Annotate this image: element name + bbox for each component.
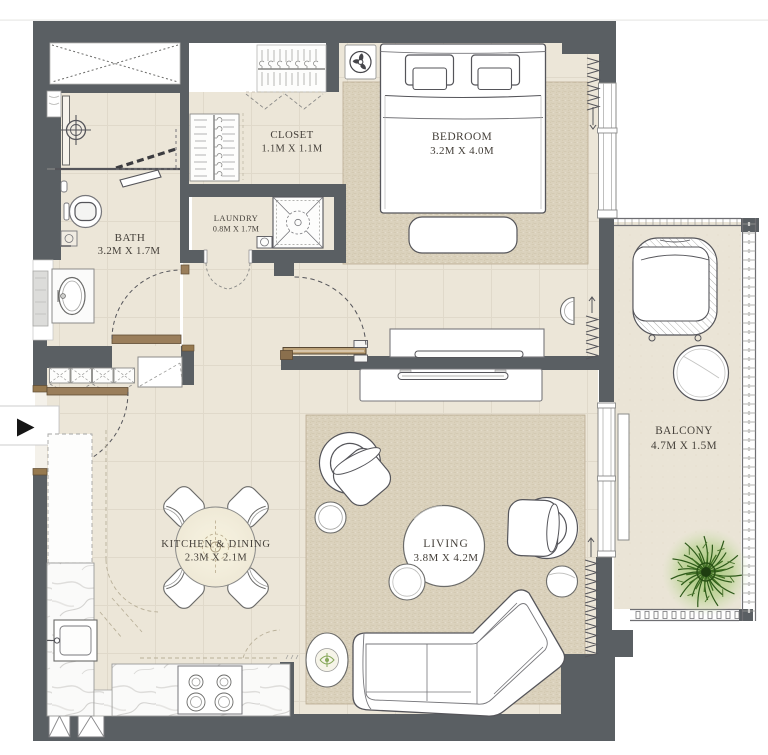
svg-text:2.3M X 2.1M: 2.3M X 2.1M [185,553,247,564]
svg-text:0.8M X 1.7M: 0.8M X 1.7M [213,225,259,234]
svg-text:3.2M X 1.7M: 3.2M X 1.7M [98,245,161,257]
svg-text:CLOSET: CLOSET [270,129,313,141]
svg-text:LAUNDRY: LAUNDRY [214,213,259,223]
svg-text:3.2M X 4.0M: 3.2M X 4.0M [430,145,494,157]
svg-text:LIVING: LIVING [423,538,469,550]
svg-text:KITCHEN & DINING: KITCHEN & DINING [161,539,271,550]
svg-text:4.7M X 1.5M: 4.7M X 1.5M [651,440,717,452]
svg-text:3.8M X 4.2M: 3.8M X 4.2M [414,552,479,564]
svg-text:BEDROOM: BEDROOM [432,131,492,143]
svg-text:1.1M X 1.1M: 1.1M X 1.1M [261,144,322,155]
svg-text:BATH: BATH [115,232,146,244]
svg-text:BALCONY: BALCONY [655,425,713,437]
